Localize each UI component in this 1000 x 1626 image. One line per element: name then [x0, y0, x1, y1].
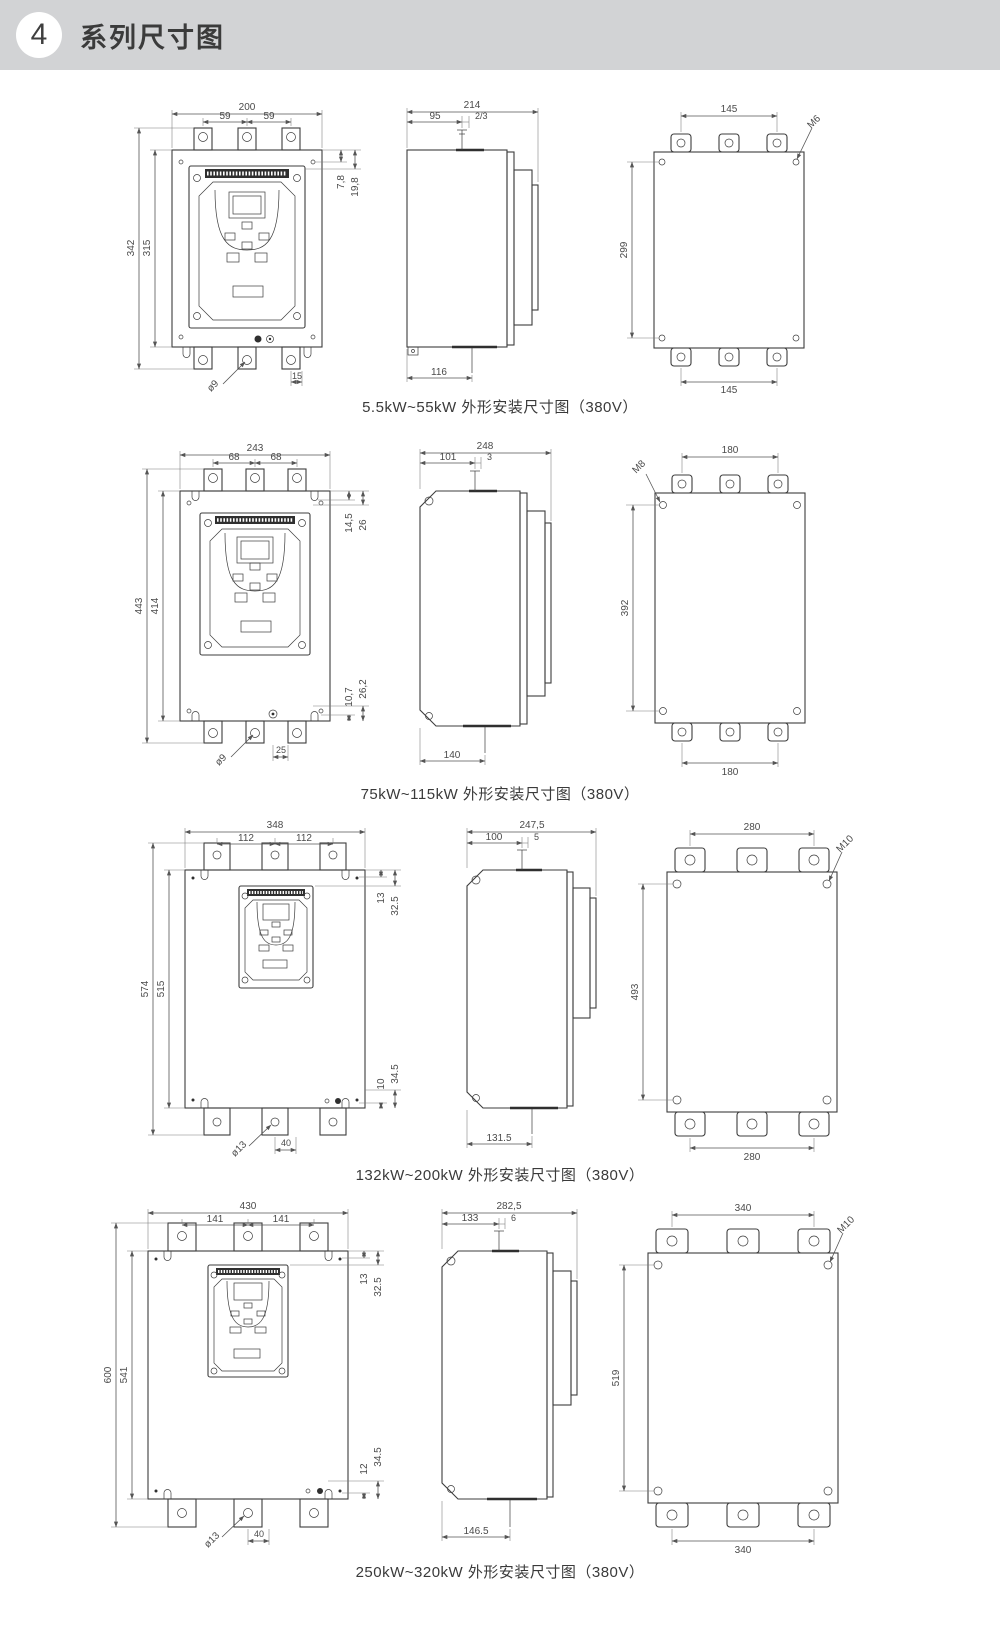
dim-overall-depth: 282,5	[496, 1201, 521, 1212]
dim-body-height: 414	[150, 597, 161, 614]
dim-top-offset-b: 19,8	[350, 177, 361, 197]
dim-bottom-offset-a: 10	[376, 1078, 387, 1090]
back-dimensions: 180 M8 392 180	[620, 445, 778, 778]
dim-bottom-pitch: 40	[254, 1529, 264, 1539]
front-dimensions: 243 68 68 443 414 14,5 26	[134, 443, 369, 768]
dim-top-offset-a: 7,8	[336, 175, 347, 189]
device-front-drawing	[185, 843, 365, 1135]
dim-front-depth: 133	[462, 1213, 479, 1224]
dim-top-offset-b: 26	[358, 519, 369, 531]
side-view-3: 247,5 100 5 131.5	[432, 812, 617, 1164]
device-back-drawing	[654, 134, 804, 366]
dim-back-bottom-pitch: 280	[744, 1152, 761, 1163]
device-back-drawing	[655, 475, 805, 741]
device-side-drawing	[420, 471, 551, 753]
side-view-2: 248 101 3 140	[385, 431, 570, 783]
side-dimensions: 248 101 3 140	[420, 441, 551, 765]
keypad	[215, 190, 279, 262]
dim-tab: 3	[487, 452, 492, 462]
dim-front-width: 348	[267, 820, 284, 831]
dim-overall-height: 342	[126, 239, 137, 256]
dim-back-top-pitch: 340	[735, 1203, 752, 1214]
dim-hole-pitch-right: 112	[296, 833, 312, 844]
dim-front-width: 243	[247, 443, 264, 454]
dim-top-offset-a: 13	[376, 892, 387, 904]
dim-top-offset-b: 32.5	[390, 896, 401, 916]
terminal-strip	[247, 889, 305, 896]
back-view-4: 340 M10 519 340	[598, 1193, 868, 1561]
figure-row-4: 430 141 141 600 541 13 32.5	[0, 1193, 1000, 1582]
back-view-2: 180 M8 392 180	[605, 431, 845, 783]
dim-mount-hole-dia: ø13	[202, 1530, 222, 1550]
dim-back-bottom-pitch: 145	[721, 385, 738, 396]
dim-screw-size: M6	[805, 113, 823, 131]
dim-base-depth: 146.5	[463, 1526, 488, 1537]
dim-bottom-pitch: 40	[281, 1138, 291, 1148]
keypad	[225, 533, 285, 602]
dim-overall-height: 600	[103, 1366, 114, 1383]
device-front-drawing	[180, 469, 330, 743]
terminal-strip	[215, 516, 295, 524]
dim-back-top-pitch: 180	[722, 445, 739, 456]
front-dimensions: 200 59 59 342 315 7,8 19,8 ø9	[126, 102, 361, 394]
terminal-strip	[205, 169, 289, 178]
dim-bottom-offset-a: 10,7	[344, 687, 355, 707]
dim-body-height: 515	[156, 980, 167, 997]
dim-bottom-offset-b: 26,2	[358, 679, 369, 699]
side-view-1: 214 95 2/3 116	[372, 90, 557, 396]
terminal-strip	[216, 1268, 280, 1275]
dim-screw-size: M8	[630, 458, 648, 476]
dim-overall-height: 443	[134, 597, 145, 614]
dim-hole-pitch-right: 59	[263, 111, 275, 122]
device-side-drawing	[467, 850, 596, 1134]
dim-body-height: 541	[119, 1366, 130, 1383]
dim-back-height: 392	[620, 599, 631, 616]
figure-row-2: 243 68 68 443 414 14,5 26	[0, 431, 1000, 804]
front-view-2: 243 68 68 443 414 14,5 26	[125, 431, 375, 783]
nameplate	[234, 1349, 260, 1358]
dim-overall-height: 574	[140, 980, 151, 997]
page-title: 系列尺寸图	[80, 16, 225, 55]
dim-front-depth: 101	[440, 452, 457, 463]
figure-caption-3: 132kW~200kW 外形安装尺寸图（380V）	[0, 1164, 1000, 1185]
dim-base-depth: 116	[431, 367, 447, 378]
dim-hole-pitch-left: 112	[238, 833, 254, 844]
device-side-drawing	[407, 130, 538, 373]
figure-caption-1: 5.5kW~55kW 外形安装尺寸图（380V）	[0, 396, 1000, 417]
dim-tab: 6	[511, 1213, 516, 1223]
dim-bottom-pitch: 25	[276, 745, 286, 755]
dim-screw-size: M10	[834, 833, 856, 855]
dim-tab: 2/3	[475, 111, 488, 121]
dim-top-offset-a: 14,5	[344, 513, 355, 533]
dim-front-width: 200	[239, 102, 256, 113]
dim-overall-depth: 247,5	[519, 820, 544, 831]
dim-back-top-pitch: 280	[744, 822, 761, 833]
front-view-1: 200 59 59 342 315 7,8 19,8 ø9	[117, 90, 367, 396]
dim-hole-pitch-left: 68	[228, 452, 240, 463]
back-view-1: 145 M6 299 145	[604, 90, 844, 396]
figure-caption-4: 250kW~320kW 外形安装尺寸图（380V）	[0, 1561, 1000, 1582]
dim-hole-pitch-right: 68	[270, 452, 282, 463]
dim-hole-pitch-left: 141	[207, 1214, 224, 1225]
device-back-drawing	[648, 1229, 838, 1527]
figure-caption-2: 75kW~115kW 外形安装尺寸图（380V）	[0, 783, 1000, 804]
back-view-3: 280 M10 493 280	[617, 812, 867, 1164]
dim-back-bottom-pitch: 340	[735, 1545, 752, 1556]
device-back-drawing	[667, 848, 837, 1136]
dim-base-depth: 140	[444, 750, 461, 761]
dim-tab: 5	[534, 832, 539, 842]
back-dimensions: 145 M6 299 145	[619, 104, 823, 396]
dim-bottom-offset-a: 12	[359, 1463, 370, 1475]
dim-top-offset-b: 32.5	[373, 1277, 384, 1297]
front-dimensions: 430 141 141 600 541 13 32.5	[103, 1201, 384, 1550]
dim-hole-pitch-left: 59	[219, 111, 231, 122]
front-view-4: 430 141 141 600 541 13 32.5	[98, 1193, 388, 1561]
keypad	[227, 1281, 269, 1333]
page-header: 4 系列尺寸图	[0, 0, 1000, 70]
dim-mount-hole-dia: ø9	[205, 378, 221, 394]
dim-back-height: 519	[611, 1369, 622, 1386]
dim-body-height: 315	[142, 239, 153, 256]
dim-hole-pitch-right: 141	[273, 1214, 290, 1225]
dim-back-height: 299	[619, 241, 630, 258]
dim-back-bottom-pitch: 180	[722, 767, 739, 778]
nameplate	[263, 960, 287, 968]
device-front-drawing	[172, 128, 322, 369]
side-dimensions: 214 95 2/3 116	[407, 100, 538, 382]
keypad	[257, 902, 295, 951]
dim-top-offset-a: 13	[359, 1273, 370, 1285]
device-side-drawing	[442, 1231, 577, 1527]
front-view-3: 348 112 112 574 515 13 32.5	[135, 812, 405, 1164]
dim-mount-hole-dia: ø9	[213, 752, 229, 768]
nameplate	[233, 286, 263, 297]
section-number-badge: 4	[16, 12, 62, 58]
dim-overall-depth: 248	[477, 441, 494, 452]
dim-bottom-pitch: 15	[292, 371, 302, 381]
dim-back-height: 493	[630, 983, 641, 1000]
side-view-4: 282,5 133 6 146.5	[407, 1193, 597, 1561]
dim-overall-depth: 214	[464, 100, 481, 111]
nameplate	[241, 621, 271, 632]
dim-bottom-offset-b: 34.5	[390, 1064, 401, 1084]
figure-row-3: 348 112 112 574 515 13 32.5	[0, 812, 1000, 1185]
dim-front-depth: 100	[486, 832, 503, 843]
dim-front-width: 430	[240, 1201, 257, 1212]
figure-row-1: 200 59 59 342 315 7,8 19,8 ø9	[0, 90, 1000, 417]
dim-front-depth: 95	[429, 111, 441, 122]
dim-base-depth: 131.5	[486, 1133, 511, 1144]
dim-back-top-pitch: 145	[721, 104, 738, 115]
dim-mount-hole-dia: ø13	[229, 1139, 249, 1159]
device-front-drawing	[148, 1223, 348, 1527]
dim-bottom-offset-b: 34.5	[373, 1447, 384, 1467]
dim-screw-size: M10	[835, 1214, 857, 1236]
